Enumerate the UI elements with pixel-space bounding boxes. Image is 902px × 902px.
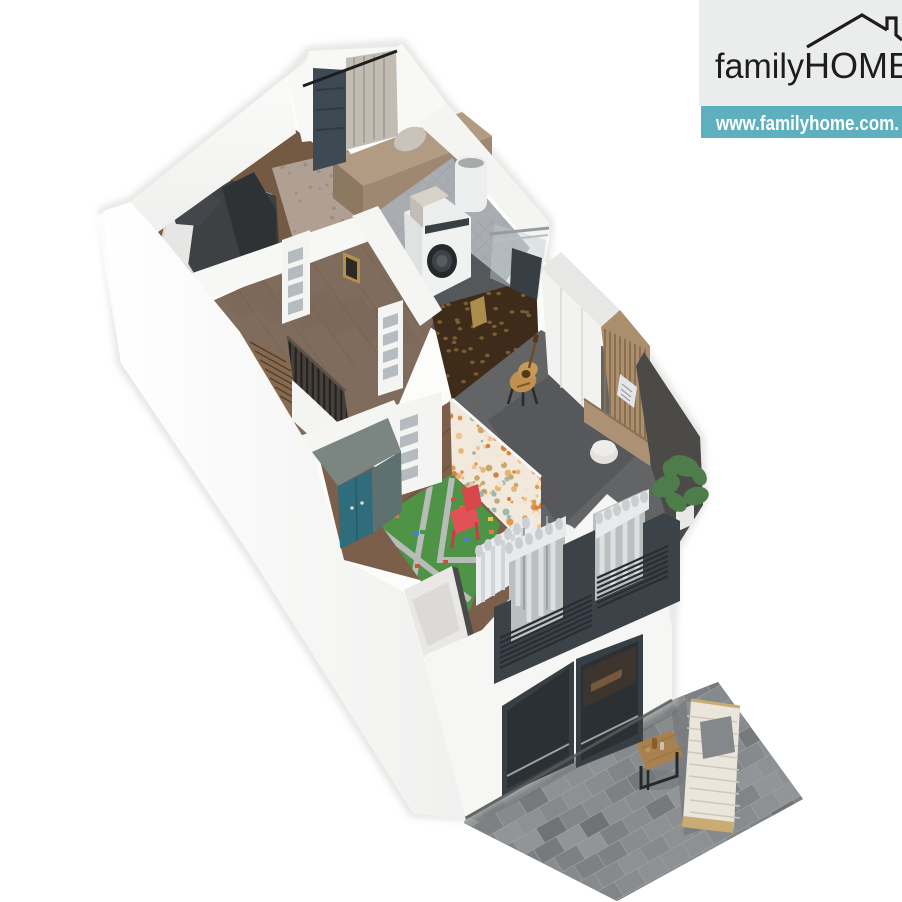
svg-text:HOME: HOME bbox=[804, 45, 902, 86]
svg-text:family: family bbox=[715, 47, 804, 86]
svg-text:www.familyhome.com.: www.familyhome.com. bbox=[715, 113, 899, 135]
